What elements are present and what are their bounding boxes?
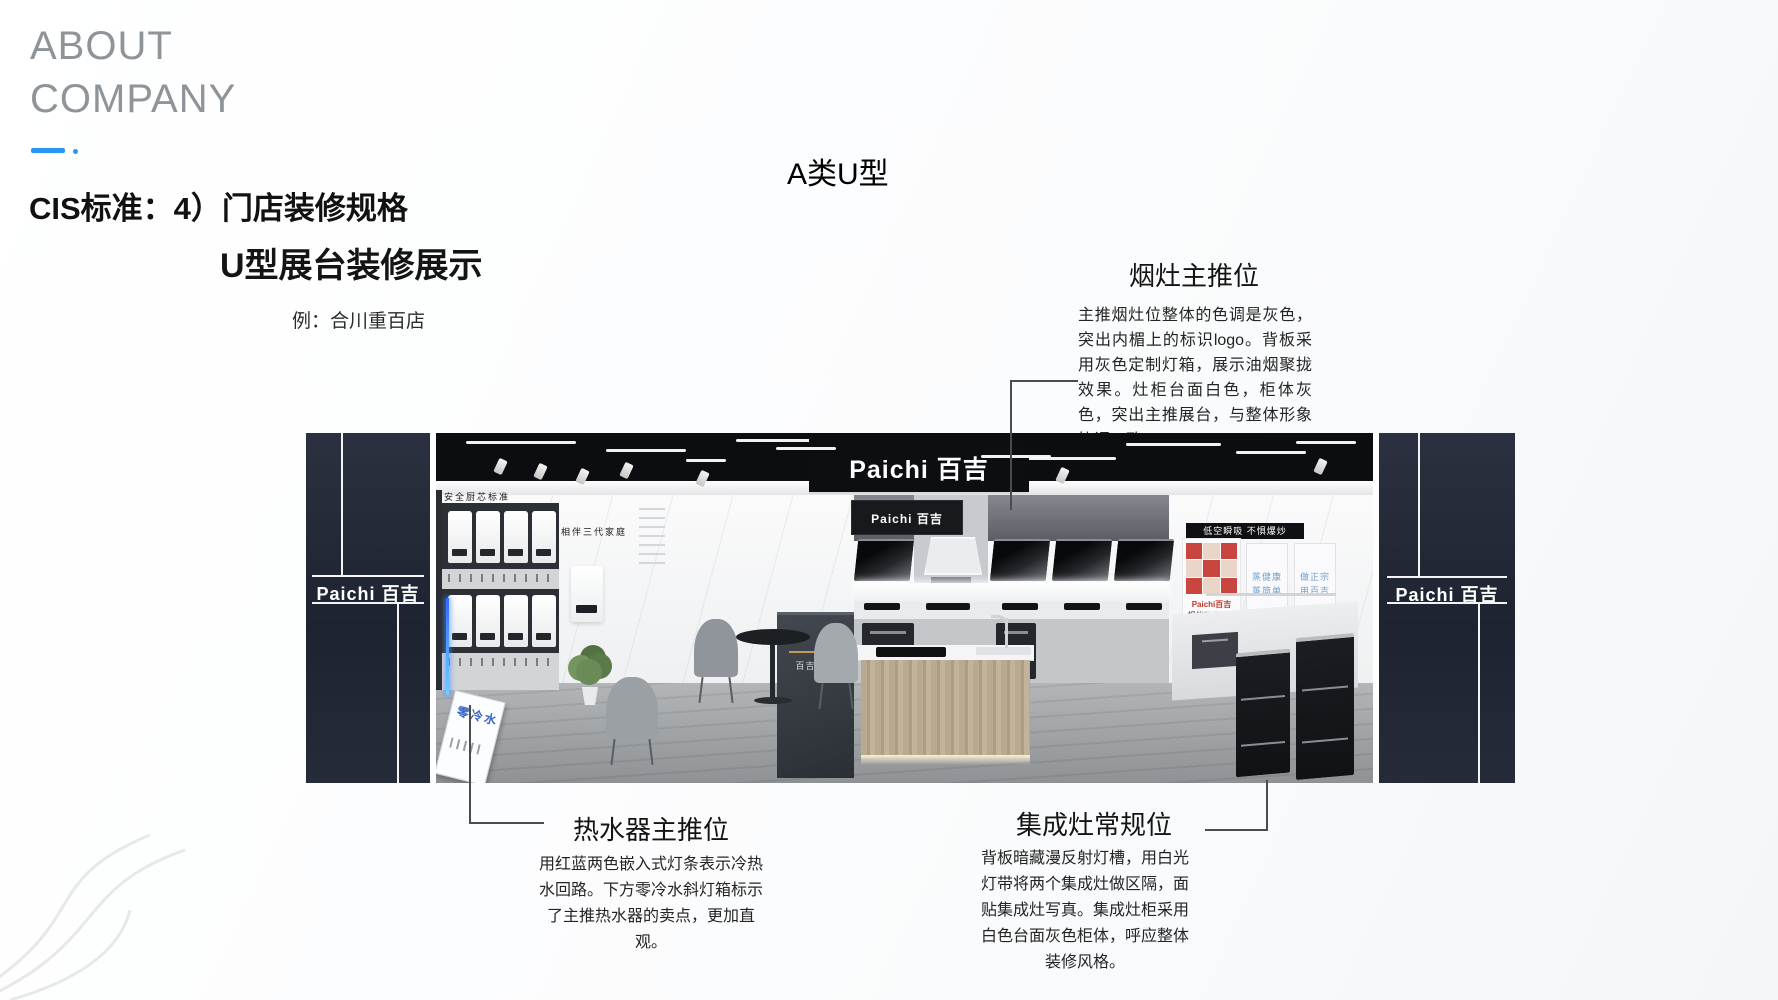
range-hood (1052, 539, 1112, 581)
display-base-band (442, 653, 559, 690)
callout-line-hood-horizontal (1010, 380, 1078, 382)
stainless-shelf (1206, 593, 1336, 596)
callout-integrated-stove-title: 集成灶常规位 (984, 805, 1204, 842)
water-heater-unit (476, 595, 500, 647)
callout-hood-stove-body: 主推烟灶位整体的色调是灰色，突出内楣上的标识logo。背板采用灰色定制灯箱，展示… (1078, 303, 1312, 453)
zero-cold-water-label: 零冷水 (455, 702, 500, 729)
water-heater-unit (532, 511, 556, 563)
ceiling-light-strip (1236, 451, 1306, 454)
integrated-stove (1236, 649, 1290, 778)
slide-background: ABOUT COMPANY CIS标准：4）门店装修规格 U型展台装修展示 例：… (0, 0, 1778, 1000)
left-pillar: Paichi 百吉 (306, 433, 430, 783)
pillar-frame-line (341, 433, 343, 576)
callout-hood-stove-title: 烟灶主推位 (1080, 256, 1308, 293)
gas-stove (1002, 603, 1038, 610)
ceiling-light-strip (686, 459, 726, 462)
callout-line-stove-horizontal (1205, 829, 1268, 831)
background-swirl (0, 740, 340, 1000)
range-hood (990, 539, 1050, 581)
gas-water-heater (571, 566, 603, 622)
water-heater-unit (448, 511, 472, 563)
poster-cell (1186, 543, 1202, 559)
section-title: CIS标准：4）门店装修规格 (29, 183, 408, 228)
ceiling-light-strip (981, 455, 1051, 458)
lit-backsplash (854, 583, 1169, 601)
water-heater-unit (532, 595, 556, 647)
integrated-stove-group (1236, 633, 1356, 783)
callout-water-heater-body: 用红蓝两色嵌入式灯条表示冷热水回路。下方零冷水斜灯箱标示了主推热水器的卖点，更加… (537, 852, 765, 956)
callout-integrated-stove-body: 背板暗藏漫反射灯槽，用白光灯带将两个集成灶做区隔，面贴集成灶写真。集成灶柜采用白… (974, 846, 1196, 976)
faucet (991, 615, 1008, 632)
pillar-frame-line (1478, 604, 1480, 783)
blue-led-strip (446, 598, 449, 695)
range-hood (1114, 539, 1174, 581)
dark-drawer-unit (1192, 632, 1238, 669)
towel-radiator (639, 508, 665, 570)
right-pillar: Paichi 百吉 (1379, 433, 1515, 783)
dining-table (736, 629, 810, 645)
integrated-stove (1296, 633, 1354, 780)
pillar-frame-line (312, 575, 424, 577)
island-underglow (861, 755, 1030, 765)
layout-type-label: A类U型 (787, 149, 889, 193)
hanging-brand-sign: Paichi 百吉 (809, 437, 1029, 494)
poster-cell (1186, 578, 1202, 594)
callout-line-water-vertical (469, 705, 471, 824)
ceiling-light-strip (776, 447, 836, 450)
water-heater-unit (476, 511, 500, 563)
showroom-photo: Paichi 百吉 (306, 433, 1515, 783)
company-line: COMPANY (30, 73, 236, 126)
accent-dot (73, 149, 78, 154)
wall-sign-center: 相伴三代家庭 (561, 525, 627, 538)
island-sink (976, 647, 1031, 655)
poster-photo-grid (1186, 543, 1237, 594)
pillar-frame-line (312, 602, 424, 604)
water-heater-unit (448, 595, 472, 647)
chair (606, 677, 658, 739)
pillar-frame-line (397, 604, 399, 783)
pillar-frame-line (1387, 576, 1507, 578)
poster-brand: Paichi百吉 (1183, 599, 1240, 610)
poster-cell (1221, 560, 1237, 576)
island-counter (857, 645, 1034, 765)
wall-sign-left: 安全厨芯标准 (444, 490, 510, 503)
poster-cell (1221, 543, 1237, 559)
pillar-frame-line (1418, 433, 1420, 577)
ceiling-light-strip (1296, 441, 1356, 444)
chair (694, 619, 738, 677)
callout-line-hood-vertical (1010, 380, 1012, 510)
gas-stove (864, 603, 900, 610)
ceiling-light-strip (1126, 443, 1221, 446)
callout-water-heater-title: 热水器主推位 (541, 810, 761, 847)
poster-cell (1203, 543, 1219, 559)
showroom-interior: 安全厨芯标准 零冷水 相伴三代家庭 (436, 433, 1373, 783)
accent-dash (31, 148, 65, 153)
wall-sign-right: 低空瞬吸 不惧爆炒 (1186, 523, 1304, 539)
ceiling-light-strip (466, 441, 576, 444)
water-heater-unit (504, 595, 528, 647)
sign-fine-print (449, 738, 482, 755)
poster-cell (1221, 578, 1237, 594)
range-hood (854, 539, 914, 581)
brand-logo: Paichi 百吉 (852, 510, 962, 527)
island-gas-stove (876, 647, 946, 657)
gas-stove (926, 603, 970, 610)
about-line: ABOUT (30, 20, 236, 73)
pillar-frame-line (1387, 602, 1507, 604)
ceiling-light-strip (606, 449, 686, 452)
poster-cell (1203, 578, 1219, 594)
island-wood-front (861, 660, 1030, 757)
gas-stove (1064, 603, 1100, 610)
example-label: 例：合川重百店 (292, 306, 425, 333)
page-title: U型展台装修展示 (220, 238, 483, 287)
poster-cell (1203, 560, 1219, 576)
display-shelf-band (442, 569, 559, 589)
chair (814, 623, 858, 683)
potted-plant (576, 659, 602, 685)
water-heater-display-wall (442, 503, 559, 690)
callout-line-water-horizontal (469, 822, 544, 824)
table-base (754, 697, 792, 704)
lintel-brand-sign: Paichi 百吉 (851, 500, 963, 535)
about-company-label: ABOUT COMPANY (30, 20, 236, 126)
water-heater-unit (504, 511, 528, 563)
callout-line-stove-vertical (1266, 780, 1268, 831)
glass-canopy-hood (924, 537, 982, 575)
gas-stove (1126, 603, 1162, 610)
poster-cell (1186, 560, 1202, 576)
table-stem (770, 641, 775, 699)
